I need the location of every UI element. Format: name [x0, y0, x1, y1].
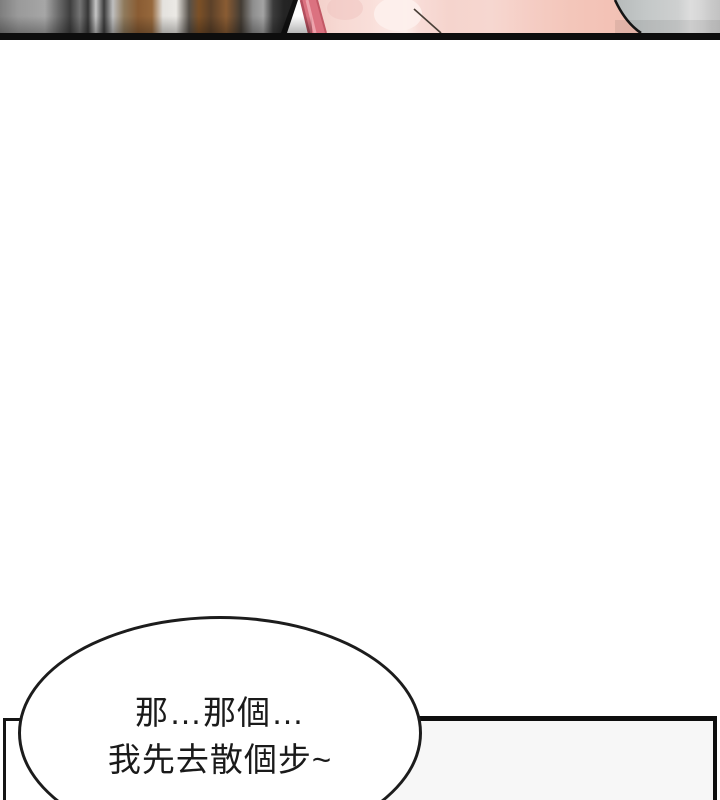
- speech-bubble: 那…那個… 我先去散個步~: [18, 616, 422, 800]
- top-panel-image: [0, 0, 720, 40]
- comic-page: 那…那個… 我先去散個步~: [0, 0, 720, 800]
- bottom-left-panel-left-border: [3, 718, 6, 800]
- speech-bubble-text: 那…那個… 我先去散個步~: [21, 689, 419, 783]
- speech-line-2: 我先去散個步~: [21, 736, 419, 783]
- speech-line-1: 那…那個…: [21, 689, 419, 736]
